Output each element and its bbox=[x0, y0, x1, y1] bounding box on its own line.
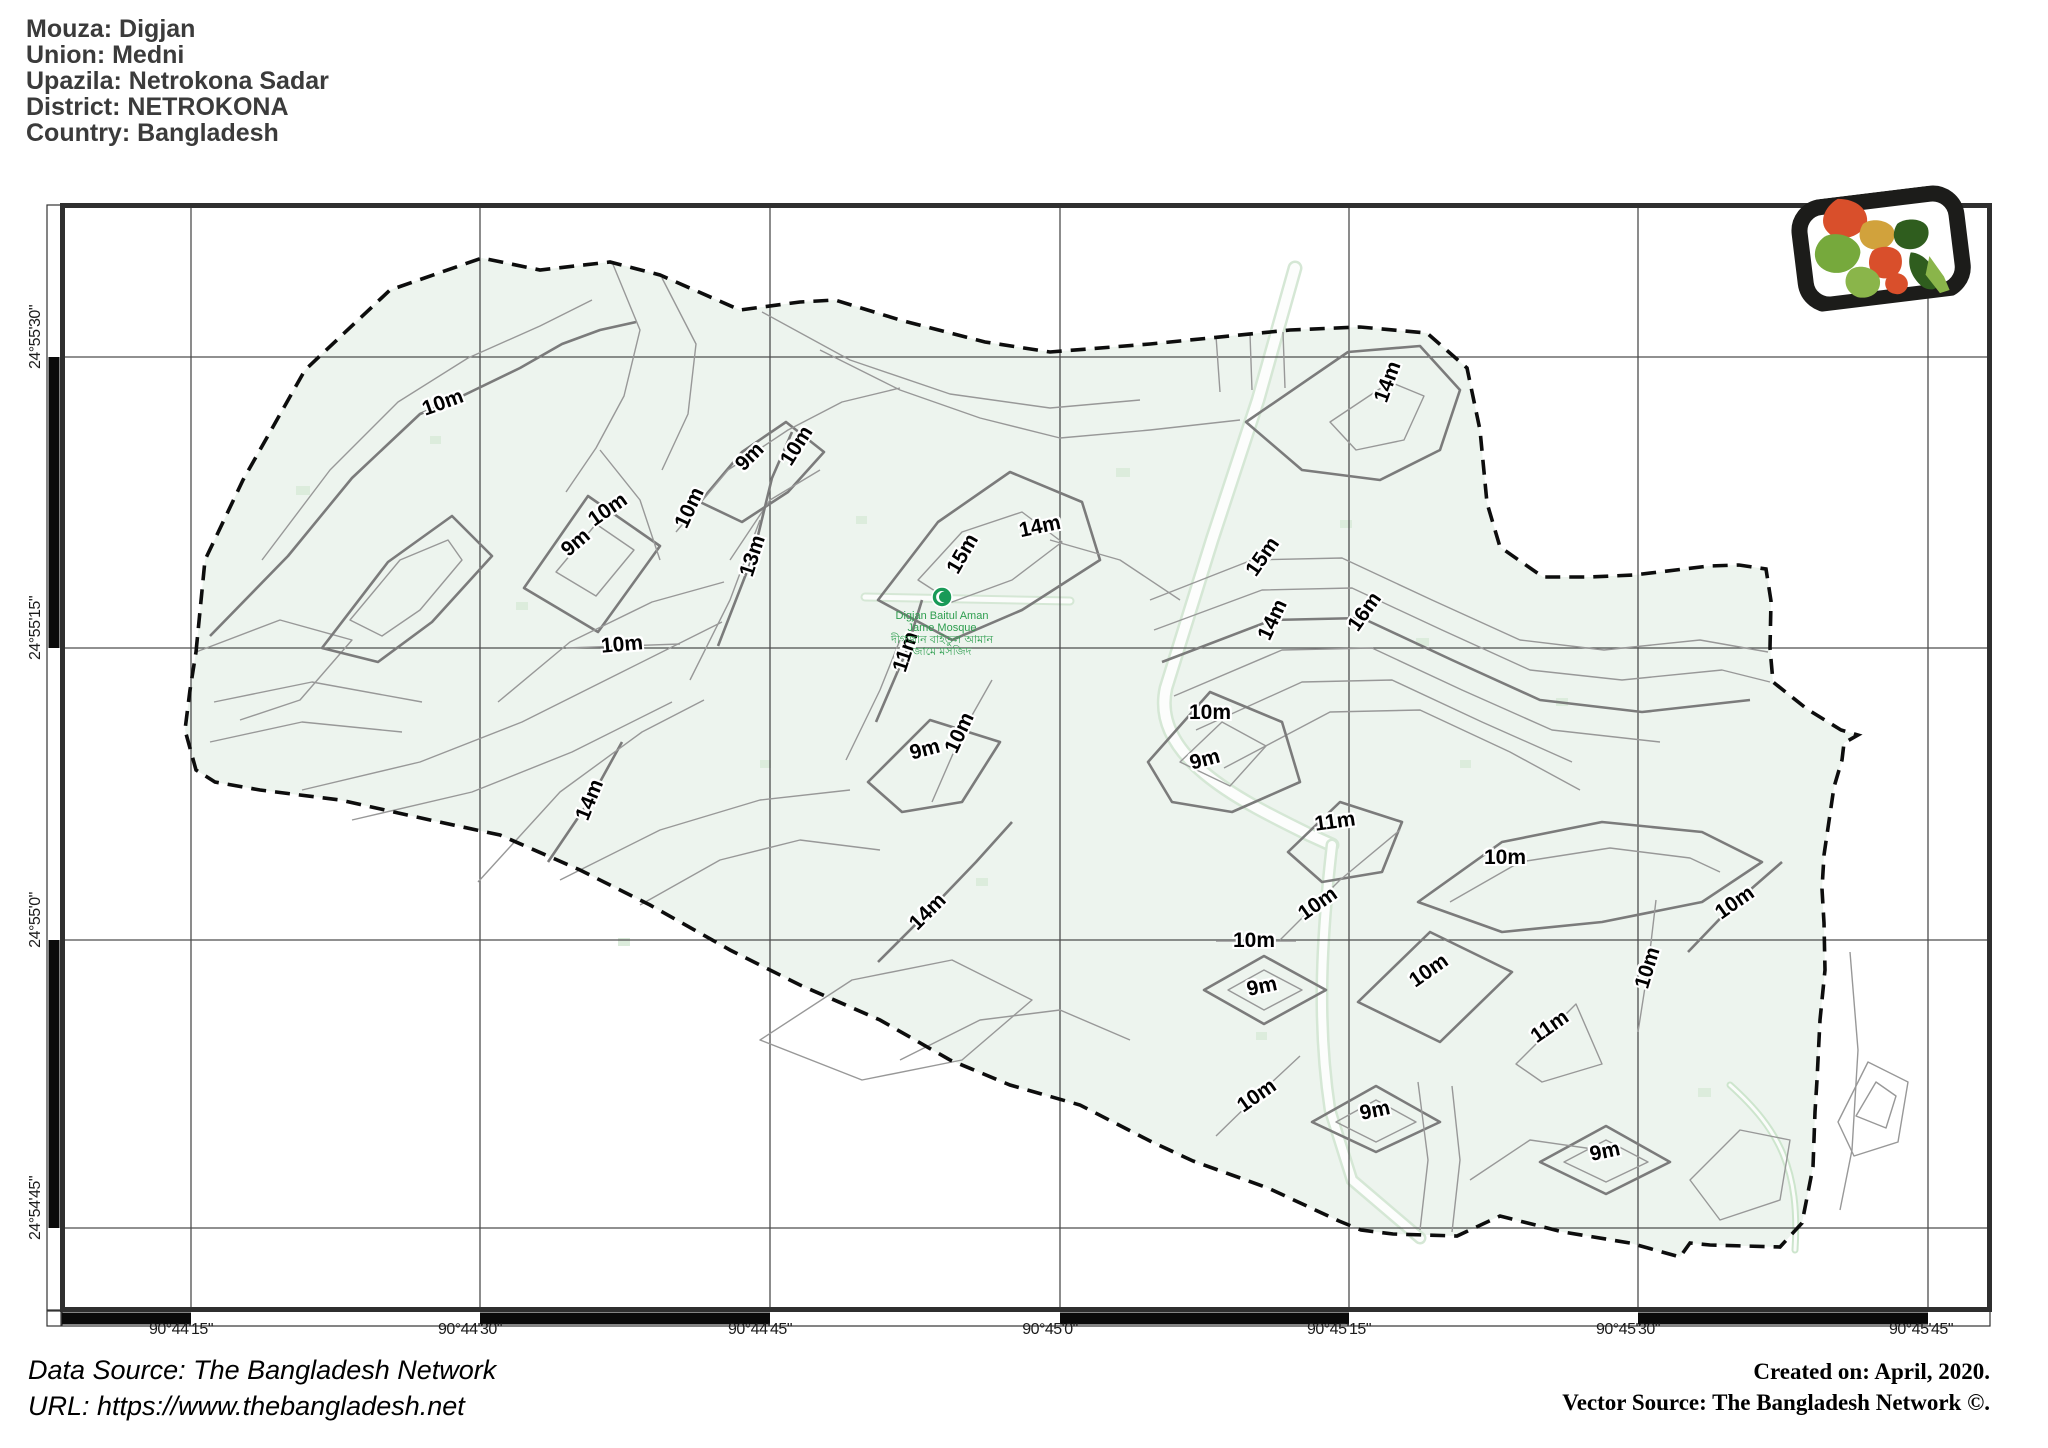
contour-label: 10m bbox=[1189, 701, 1231, 725]
title-line: Mouza: Digjan bbox=[26, 16, 329, 42]
x-axis-label: 90°44'30" bbox=[438, 1321, 502, 1339]
y-axis-label: 24°55'15" bbox=[27, 596, 45, 660]
mosque-marker-icon bbox=[931, 586, 953, 608]
x-axis-label: 90°45'30" bbox=[1596, 1321, 1660, 1339]
title-line: Country: Bangladesh bbox=[26, 120, 329, 146]
mosque-label-line: Digjan Baitul Aman bbox=[852, 610, 1032, 622]
contour-label: 10m bbox=[1233, 929, 1275, 953]
x-axis-label: 90°44'15" bbox=[149, 1321, 213, 1339]
title-line: Union: Medni bbox=[26, 42, 329, 68]
title-line: Upazila: Netrokona Sadar bbox=[26, 68, 329, 94]
contour-label: 10m bbox=[600, 631, 644, 659]
mosque-label: Digjan Baitul AmanJame Mosqueদীগজান বাইত… bbox=[852, 610, 1032, 658]
y-axis-label: 24°55'0" bbox=[27, 892, 45, 948]
x-axis-label: 90°45'0" bbox=[1022, 1321, 1078, 1339]
map-title-block: Mouza: DigjanUnion: MedniUpazila: Netrok… bbox=[26, 16, 329, 146]
footer-credit-line: Created on: April, 2020. bbox=[1562, 1356, 1990, 1387]
map-canvas bbox=[0, 0, 2048, 1448]
bangladesh-map-logo bbox=[1786, 182, 1976, 315]
y-axis-label: 24°54'45" bbox=[27, 1176, 45, 1240]
footer-source-line: Data Source: The Bangladesh Network bbox=[28, 1352, 496, 1388]
x-axis-label: 90°45'15" bbox=[1307, 1321, 1371, 1339]
y-axis-label: 24°55'30" bbox=[27, 305, 45, 369]
mosque-label-line: জামে মসজিদ bbox=[852, 646, 1032, 658]
title-line: District: NETROKONA bbox=[26, 94, 329, 120]
contour-label: 10m bbox=[1484, 846, 1526, 870]
footer-source-line: URL: https://www.thebangladesh.net bbox=[28, 1388, 496, 1424]
x-axis-label: 90°44'45" bbox=[728, 1321, 792, 1339]
footer-credit-block: Created on: April, 2020.Vector Source: T… bbox=[1562, 1356, 1990, 1418]
mosque-label-line: দীগজান বাইতুল আমান bbox=[852, 634, 1032, 646]
footer-credit-line: Vector Source: The Bangladesh Network ©. bbox=[1562, 1387, 1990, 1418]
footer-source-block: Data Source: The Bangladesh NetworkURL: … bbox=[28, 1352, 496, 1424]
x-axis-label: 90°45'45" bbox=[1889, 1321, 1953, 1339]
mosque-label-line: Jame Mosque bbox=[852, 622, 1032, 634]
